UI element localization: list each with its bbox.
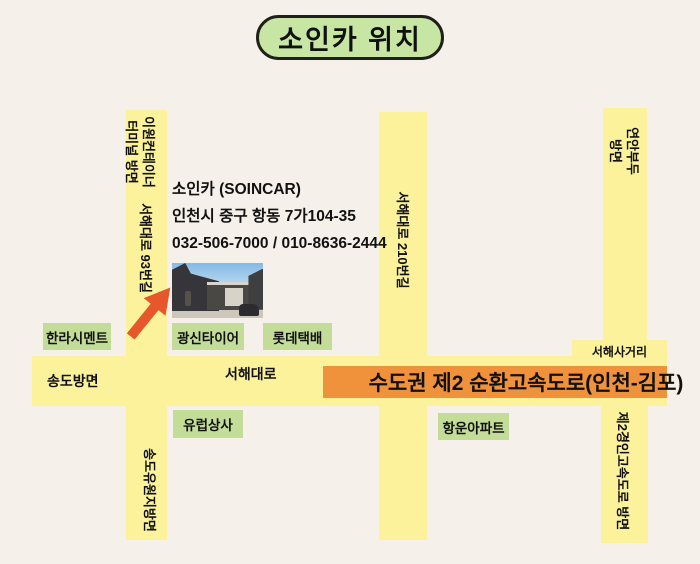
road-label-songdo-direction: 송도방면: [47, 371, 99, 391]
intersection-label: 서해사거리: [572, 340, 667, 362]
road-label-terminal-line2: 터미널 방면: [123, 120, 140, 183]
business-info: 소인카 (SOINCAR) 인천시 중구 항동 7가104-35 032-506…: [172, 176, 387, 257]
road-label-terminal: 이원컨테이너 터미널 방면: [122, 111, 158, 193]
road-label-gyeongin: 제2경인고속도로 방면: [615, 407, 631, 535]
location-map: 소인카 위치 수도권 제2 순환고속도로(인천-김포) 서해사거리 이원컨테이너…: [0, 0, 700, 564]
road-label-yeonan-line1: 연안부두: [624, 127, 641, 175]
landmark-halla-cement: 한라시멘트: [43, 323, 111, 350]
photo-person: [185, 291, 191, 306]
road-label-seohae-210: 서해대로 210번길: [395, 186, 411, 294]
page-title: 소인카 위치: [256, 15, 444, 60]
road-label-terminal-line1: 이원컨테이너: [140, 116, 157, 188]
location-photo: [172, 263, 263, 318]
landmark-lotte-parcel: 롯데택배: [263, 323, 332, 350]
photo-car: [239, 304, 259, 316]
business-name: 소인카 (SOINCAR): [172, 176, 387, 203]
photo-garage-door: [225, 288, 243, 306]
road-label-yeonan-line2: 방면: [607, 139, 624, 163]
road-label-seohae-93: 서해대로 93번길: [138, 198, 154, 298]
landmark-europe-trading: 유럽상사: [173, 410, 243, 438]
landmark-hangun-apartment: 항운아파트: [438, 413, 509, 440]
business-phones: 032-506-7000 / 010-8636-2444: [172, 230, 387, 257]
road-label-songdo-park: 송도유원지방면: [142, 444, 158, 536]
highway-band: 수도권 제2 순환고속도로(인천-김포): [323, 366, 667, 398]
road-label-yeonan-pier: 연안부두 방면: [607, 123, 641, 179]
road-label-seohaedaero: 서해대로: [225, 364, 277, 384]
landmark-gwangsin-tire: 광신타이어: [172, 323, 244, 350]
business-address: 인천시 중구 항동 7가104-35: [172, 203, 387, 230]
